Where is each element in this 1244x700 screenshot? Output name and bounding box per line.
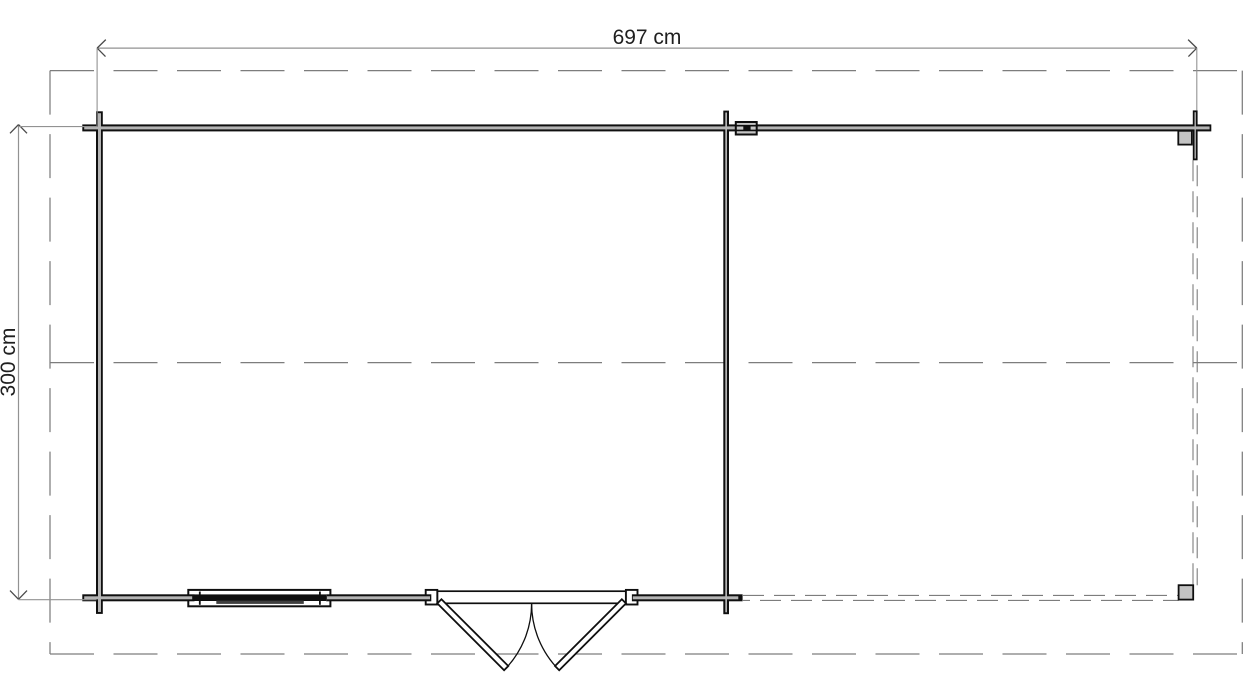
svg-text:697 cm: 697 cm (613, 26, 682, 49)
svg-text:300 cm: 300 cm (0, 328, 20, 397)
